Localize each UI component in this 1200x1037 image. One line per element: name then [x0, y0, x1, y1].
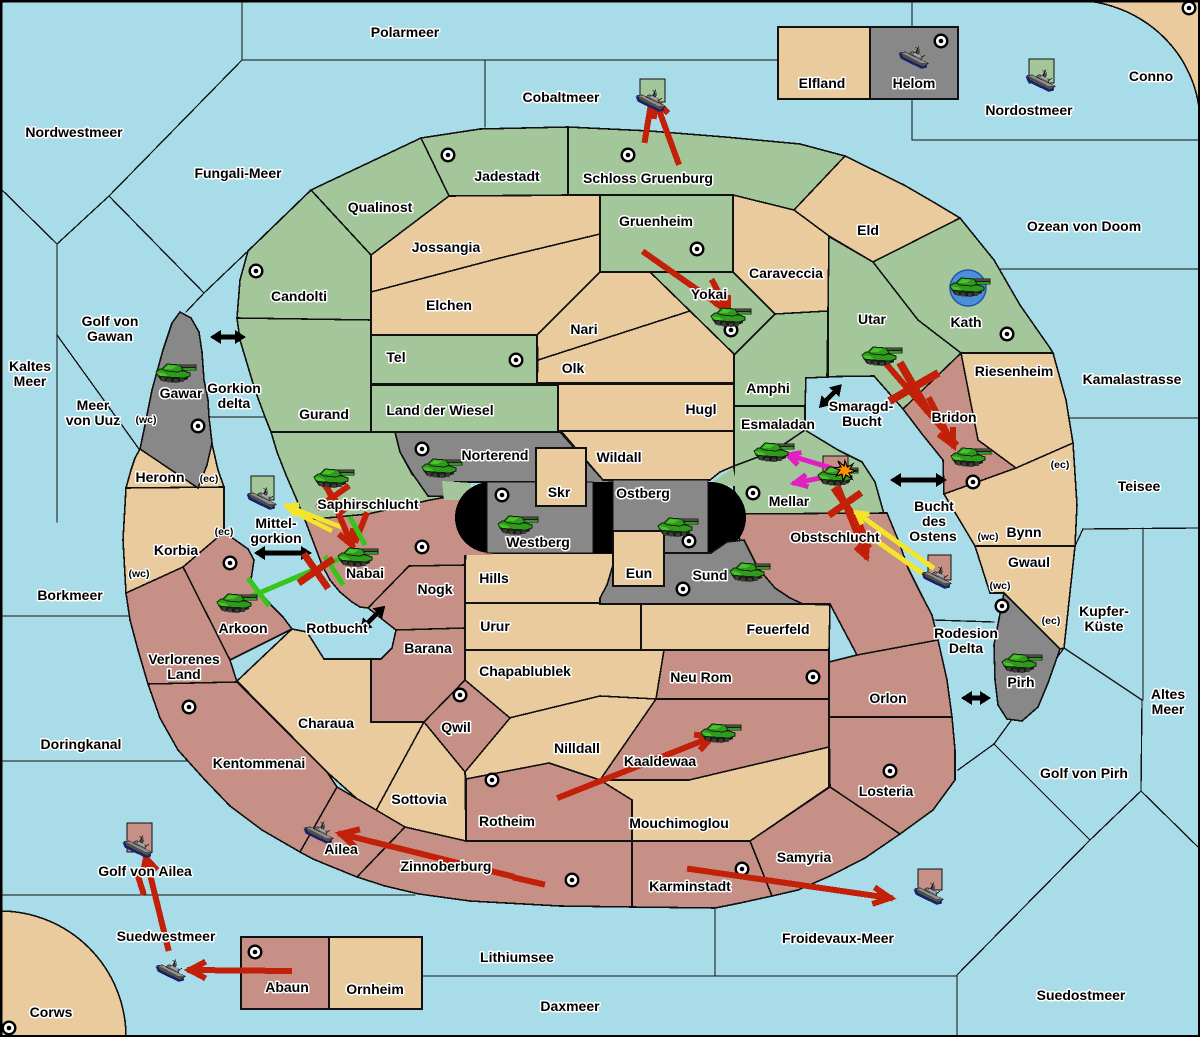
svg-text:Gwaul: Gwaul [1008, 554, 1050, 570]
svg-text:Bucht: Bucht [842, 413, 882, 429]
svg-text:Ostberg: Ostberg [616, 485, 670, 501]
svg-text:Saphirschlucht: Saphirschlucht [317, 496, 418, 512]
svg-text:Sund: Sund [693, 567, 728, 583]
svg-text:Hugl: Hugl [685, 401, 716, 417]
svg-text:Utar: Utar [858, 311, 887, 327]
svg-text:Lithiumsee: Lithiumsee [480, 949, 554, 965]
svg-text:Meer: Meer [14, 373, 47, 389]
svg-text:Jadestadt: Jadestadt [474, 168, 540, 184]
svg-text:Tel: Tel [386, 349, 405, 365]
svg-text:Meer: Meer [77, 397, 110, 413]
svg-text:Jossangia: Jossangia [412, 239, 481, 255]
svg-text:(ec): (ec) [1042, 615, 1061, 627]
svg-text:Nilldall: Nilldall [554, 740, 600, 756]
svg-text:Land der Wiesel: Land der Wiesel [386, 402, 493, 418]
svg-text:Doringkanal: Doringkanal [41, 736, 122, 752]
svg-text:Mellar: Mellar [769, 493, 810, 509]
svg-text:Abaun: Abaun [265, 979, 309, 995]
svg-text:Rodesion: Rodesion [934, 625, 998, 641]
svg-text:Golf von Ailea: Golf von Ailea [98, 863, 192, 879]
svg-text:Polarmeer: Polarmeer [371, 24, 440, 40]
svg-text:von Uuz: von Uuz [66, 412, 120, 428]
svg-text:Gawan: Gawan [87, 328, 133, 344]
svg-text:Bridon: Bridon [931, 409, 976, 425]
svg-text:Sottovia: Sottovia [391, 791, 446, 807]
svg-text:Candolti: Candolti [271, 288, 327, 304]
svg-text:Nordwestmeer: Nordwestmeer [25, 124, 123, 140]
svg-text:Rotheim: Rotheim [479, 813, 535, 829]
svg-text:Zinnoberburg: Zinnoberburg [401, 858, 492, 874]
svg-text:Pirh: Pirh [1007, 674, 1034, 690]
svg-text:Arkoon: Arkoon [219, 620, 268, 636]
svg-text:Ostens: Ostens [909, 528, 957, 544]
svg-text:Gurand: Gurand [299, 406, 349, 422]
svg-text:Heronn: Heronn [136, 469, 185, 485]
svg-text:Meer: Meer [1152, 701, 1185, 717]
svg-text:Karminstadt: Karminstadt [649, 878, 731, 894]
svg-text:Nabai: Nabai [346, 565, 384, 581]
svg-text:Kupfer-: Kupfer- [1079, 603, 1129, 619]
svg-text:Gruenheim: Gruenheim [619, 213, 693, 229]
svg-text:Losteria: Losteria [859, 783, 914, 799]
svg-text:Land: Land [167, 666, 200, 682]
svg-text:Golf von Pirh: Golf von Pirh [1040, 765, 1128, 781]
svg-text:Eun: Eun [626, 565, 652, 581]
svg-text:Froidevaux-Meer: Froidevaux-Meer [782, 930, 895, 946]
svg-text:Wildall: Wildall [597, 449, 642, 465]
svg-text:Delta: Delta [949, 640, 983, 656]
svg-text:Bucht: Bucht [914, 498, 954, 514]
svg-text:Charaua: Charaua [298, 715, 354, 731]
svg-text:Kaaldewaa: Kaaldewaa [624, 753, 697, 769]
svg-text:Fungali-Meer: Fungali-Meer [194, 165, 282, 181]
svg-text:Qwil: Qwil [441, 719, 471, 735]
svg-text:Nari: Nari [570, 321, 597, 337]
svg-text:Feuerfeld: Feuerfeld [746, 621, 809, 637]
svg-text:Obstschlucht: Obstschlucht [790, 529, 880, 545]
svg-text:Qualinost: Qualinost [348, 199, 413, 215]
svg-text:Conno: Conno [1129, 68, 1173, 84]
svg-text:Ailea: Ailea [324, 841, 358, 857]
svg-text:Korbia: Korbia [154, 542, 199, 558]
svg-text:Neu Rom: Neu Rom [670, 669, 731, 685]
svg-text:(ec): (ec) [215, 526, 234, 538]
svg-text:Altes: Altes [1151, 686, 1185, 702]
svg-text:Nordostmeer: Nordostmeer [985, 102, 1073, 118]
svg-text:Kath: Kath [950, 314, 981, 330]
svg-text:Nogk: Nogk [418, 581, 453, 597]
svg-text:Rotbucht: Rotbucht [306, 620, 368, 636]
svg-text:Eld: Eld [857, 222, 879, 238]
svg-text:Kentommenai: Kentommenai [213, 755, 306, 771]
svg-text:Hills: Hills [479, 570, 509, 586]
svg-text:Olk: Olk [562, 360, 585, 376]
svg-text:des: des [922, 513, 946, 529]
svg-text:Riesenheim: Riesenheim [975, 363, 1054, 379]
svg-text:Ozean von Doom: Ozean von Doom [1027, 218, 1141, 234]
svg-text:Westberg: Westberg [506, 534, 570, 550]
svg-text:delta: delta [218, 395, 251, 411]
svg-text:(ec): (ec) [200, 473, 219, 485]
svg-text:Corws: Corws [30, 1004, 73, 1020]
svg-text:Samyria: Samyria [777, 849, 832, 865]
svg-text:Suedwestmeer: Suedwestmeer [117, 928, 216, 944]
svg-text:Norterend: Norterend [462, 447, 529, 463]
svg-text:Urur: Urur [480, 618, 510, 634]
svg-text:Smaragd-: Smaragd- [829, 398, 894, 414]
svg-text:Elchen: Elchen [426, 297, 472, 313]
svg-text:Yokai: Yokai [691, 286, 727, 302]
svg-text:(wc): (wc) [129, 568, 150, 580]
svg-text:Golf von: Golf von [82, 313, 139, 329]
svg-text:Gawar: Gawar [160, 385, 203, 401]
svg-text:Caraveccia: Caraveccia [749, 265, 823, 281]
svg-text:Ornheim: Ornheim [346, 981, 404, 997]
svg-text:Suedostmeer: Suedostmeer [1037, 987, 1126, 1003]
svg-text:Verlorenes: Verlorenes [148, 651, 220, 667]
svg-text:Barana: Barana [404, 640, 452, 656]
svg-text:Elfland: Elfland [799, 75, 846, 91]
svg-text:(wc): (wc) [136, 414, 157, 426]
svg-text:Küste: Küste [1085, 618, 1124, 634]
svg-text:(wc): (wc) [990, 580, 1011, 592]
svg-text:Skr: Skr [548, 484, 571, 500]
svg-text:Gorkion: Gorkion [207, 380, 261, 396]
svg-text:gorkion: gorkion [250, 530, 301, 546]
svg-text:Mouchimoglou: Mouchimoglou [629, 815, 729, 831]
svg-text:Amphi: Amphi [746, 380, 790, 396]
svg-text:Daxmeer: Daxmeer [540, 998, 600, 1014]
svg-text:Helom: Helom [893, 75, 936, 91]
svg-text:Orlon: Orlon [869, 690, 906, 706]
svg-text:(ec): (ec) [1051, 459, 1070, 471]
svg-text:Bynn: Bynn [1007, 524, 1042, 540]
svg-text:Kaltes: Kaltes [9, 358, 51, 374]
svg-text:Esmaladan: Esmaladan [741, 416, 815, 432]
svg-text:Mittel-: Mittel- [255, 515, 297, 531]
svg-text:Borkmeer: Borkmeer [37, 587, 103, 603]
svg-text:(wc): (wc) [978, 531, 999, 543]
svg-text:Schloss Gruenburg: Schloss Gruenburg [583, 170, 713, 186]
svg-text:Kamalastrasse: Kamalastrasse [1083, 371, 1182, 387]
svg-text:Cobaltmeer: Cobaltmeer [522, 89, 600, 105]
svg-text:Teisee: Teisee [1118, 478, 1161, 494]
svg-text:Chapablublek: Chapablublek [479, 663, 571, 679]
